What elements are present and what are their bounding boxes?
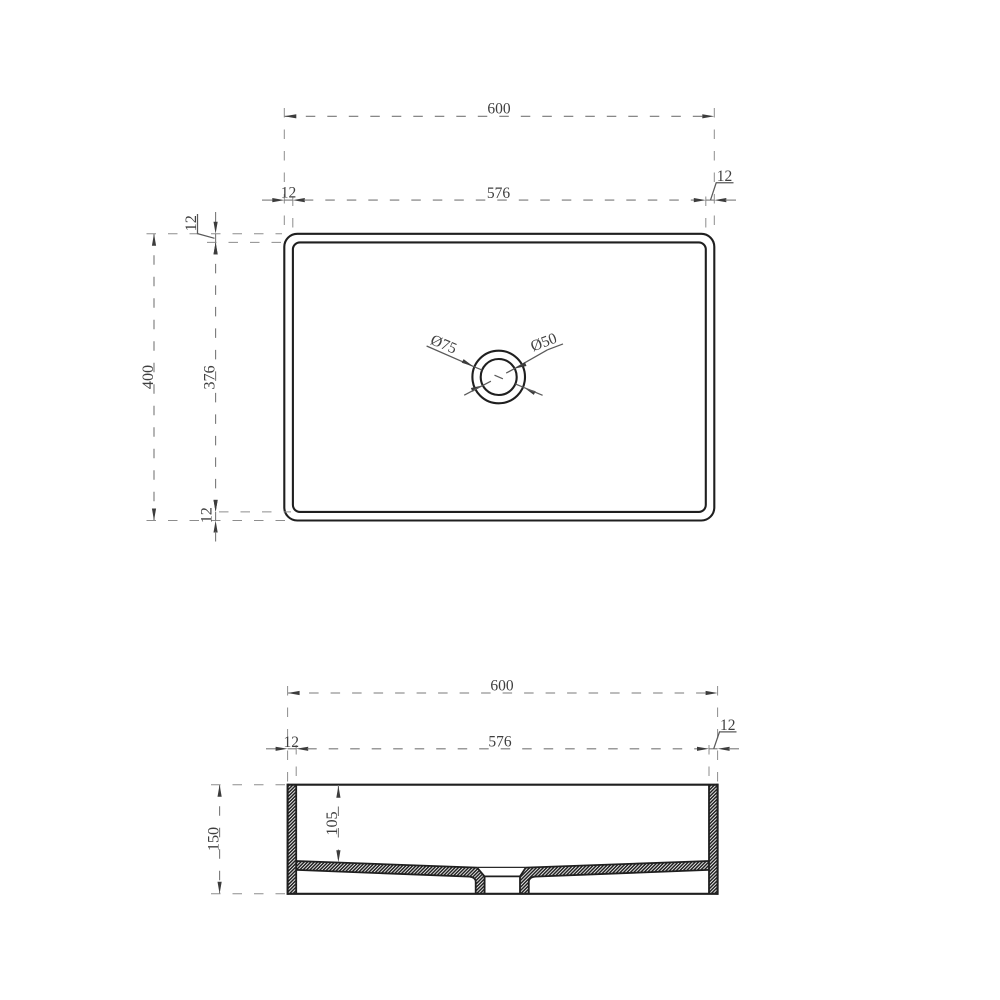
svg-text:12: 12 xyxy=(182,215,200,231)
svg-text:150: 150 xyxy=(205,827,223,851)
svg-text:376: 376 xyxy=(200,365,218,389)
svg-text:600: 600 xyxy=(487,101,511,118)
svg-text:12: 12 xyxy=(284,734,300,751)
svg-text:576: 576 xyxy=(487,185,511,202)
svg-text:576: 576 xyxy=(488,734,512,751)
svg-text:105: 105 xyxy=(323,811,341,835)
svg-text:12: 12 xyxy=(198,507,216,523)
svg-text:600: 600 xyxy=(490,677,514,694)
svg-text:12: 12 xyxy=(720,717,736,734)
svg-text:12: 12 xyxy=(717,168,733,185)
svg-text:400: 400 xyxy=(139,365,157,389)
svg-text:12: 12 xyxy=(281,185,297,202)
